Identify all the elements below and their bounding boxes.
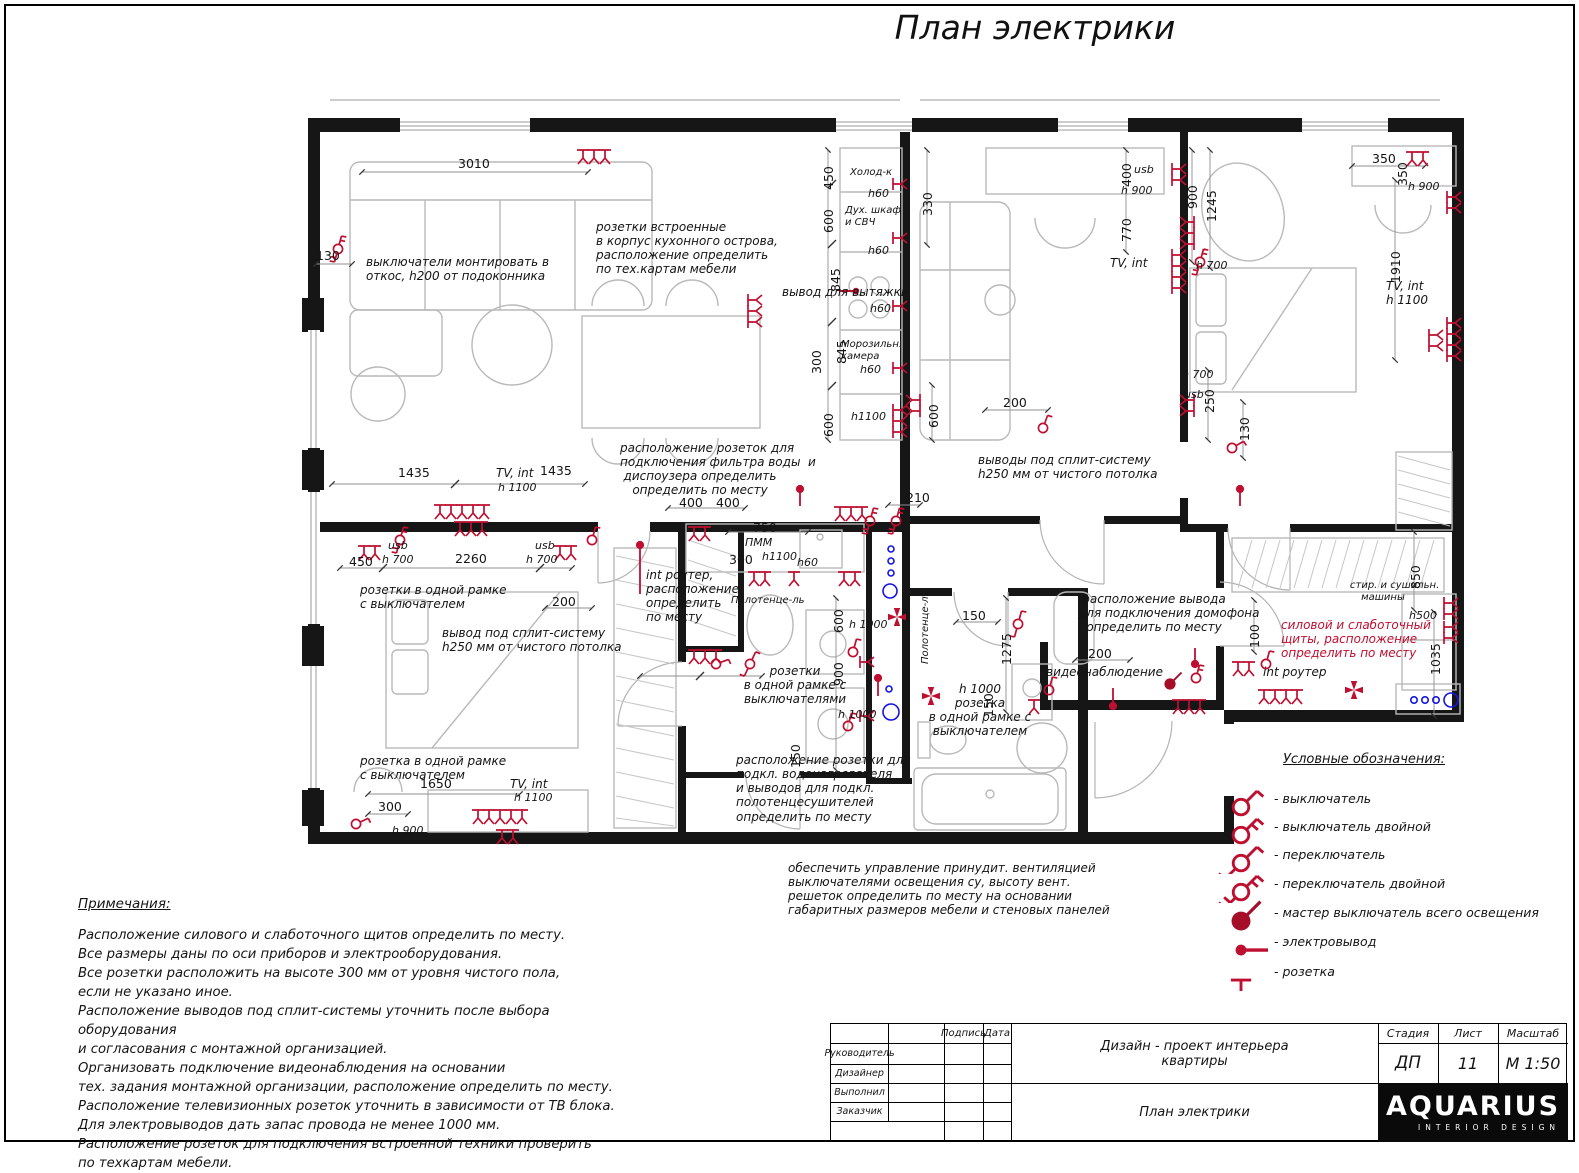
plan-label: 3010 <box>458 157 490 172</box>
switch-icon <box>1035 414 1057 434</box>
plan-label: 600 <box>822 413 837 437</box>
plan-label: 200 <box>552 595 576 610</box>
windows <box>308 100 1440 788</box>
plan-label: 300 <box>378 800 402 815</box>
note-line: Расположение телевизионных розеток уточн… <box>78 1097 638 1116</box>
note-line: если не указано иное. <box>78 983 638 1002</box>
plan-label: TV, int <box>510 777 547 791</box>
plan-label: TV, int <box>496 466 533 480</box>
switch-icon <box>710 653 732 673</box>
logo-text: AQUARIUS <box>1386 1093 1560 1120</box>
plan-label: Холод-к <box>850 167 892 179</box>
note-line: Организовать подключение видеонаблюдения… <box>78 1059 638 1078</box>
notes-title: Примечания: <box>78 896 638 912</box>
switch-double-icon <box>1187 663 1209 684</box>
note-line: и согласования с монтажной организацией. <box>78 1040 638 1059</box>
plan-label: 1035 <box>1429 643 1444 675</box>
plan-label: розетки встроенные в корпус кухонного ос… <box>596 220 778 277</box>
logo-subtext: INTERIOR DESIGN <box>1418 1123 1560 1132</box>
tb-list-label: Лист <box>1438 1024 1498 1043</box>
plan-label: TV, int h 1100 <box>1386 279 1428 307</box>
plan-label: обеспечить управление принудит. вентиляц… <box>788 861 1110 918</box>
plan-label: 450 <box>822 166 837 190</box>
plan-label: int роутер <box>1263 665 1327 679</box>
socket-group-icon <box>434 505 490 519</box>
plan-label: вывод под сплит-систему h250 мм от чисто… <box>442 626 621 654</box>
plan-label: h 900 <box>1408 181 1439 194</box>
plan-label: 600 <box>832 609 847 633</box>
plan-label: h60 <box>870 303 891 316</box>
tb-project: Дизайн - проект интерьера квартиры <box>1011 1024 1378 1083</box>
legend-title: Условные обозначения: <box>1283 752 1445 767</box>
plan-label: ПММ <box>745 537 772 550</box>
tb-date-label: Дата <box>983 1024 1011 1043</box>
plan-label: 210 <box>906 491 930 506</box>
plan-label: 770 <box>1120 218 1135 242</box>
plan-label: 1245 <box>1205 190 1220 222</box>
plan-label: h60 <box>868 245 889 258</box>
legend-label: - выключатель двойной <box>1274 819 1431 834</box>
fan-icon <box>1345 681 1363 699</box>
plan-label: usb <box>535 540 555 553</box>
plan-label: h 900 <box>392 825 423 838</box>
legend-label: - мастер выключатель всего освещения <box>1274 905 1539 920</box>
legend-label: - электровывод <box>1274 934 1376 949</box>
plan-label: 400 <box>679 496 703 511</box>
socket-group-icon <box>472 810 528 824</box>
notes-block: Примечания: Расположение силового и слаб… <box>78 896 638 1173</box>
plan-label: Морозильн. камера <box>841 339 902 363</box>
plan-label: h 1100 <box>498 482 536 495</box>
legend-label: - переключатель <box>1274 847 1385 862</box>
plan-label: 300 <box>729 553 753 568</box>
plan-label: расположение вывода для подключения домо… <box>1078 592 1230 634</box>
plan-label: видеонаблюдение <box>1046 665 1163 679</box>
plan-label: 750 <box>753 521 777 536</box>
plan-label: 330 <box>921 192 936 216</box>
plan-label: h 900 <box>1121 185 1152 198</box>
plan-label: силовой и слаботочный щиты, расположение… <box>1281 618 1431 660</box>
legend-label: - переключатель двойной <box>1274 876 1445 891</box>
note-line: Для электровыводов дать запас провода не… <box>78 1116 638 1135</box>
plan-label: 600 <box>822 209 837 233</box>
plan-label: h 700 <box>1196 260 1227 273</box>
plan-label: int роутер, расположение определить по м… <box>646 568 739 625</box>
socket-group-icon <box>1429 329 1443 352</box>
plan-label: h60 <box>860 364 881 377</box>
master-switch-icon <box>1164 673 1181 690</box>
plan-label: h1100 <box>762 551 797 564</box>
note-line: Расположение силового и слаботочного щит… <box>78 926 638 945</box>
plan-label: h 1000 <box>838 709 876 722</box>
plan-label: h500 <box>1409 610 1437 623</box>
plan-label: выключатели монтировать в откос, h200 от… <box>366 255 549 283</box>
tb-stage-label: Стадия <box>1378 1024 1438 1043</box>
socket-group-icon <box>834 507 868 521</box>
note-line: тех. задания монтажной организации, расп… <box>78 1078 638 1097</box>
plan-label: расположение розетки для подкл. водонагр… <box>736 753 911 824</box>
plan-label: h 1000 <box>849 619 887 632</box>
plan-label: 850 <box>1409 565 1424 589</box>
tb-list-value: 11 <box>1438 1043 1498 1083</box>
plan-label: 845 <box>829 268 844 292</box>
title-block: Подпись Дата РуководительДизайнерВыполни… <box>830 1023 1567 1141</box>
tb-row-label: Выполнил <box>831 1083 888 1102</box>
note-line: Все розетки расположить на высоте 300 мм… <box>78 964 638 983</box>
socket-group-icon <box>688 650 722 664</box>
socket-group-icon <box>838 572 861 586</box>
tb-stage-value: ДП <box>1378 1043 1438 1083</box>
plan-label: выводы под сплит-систему h250 мм от чист… <box>978 453 1157 481</box>
plan-label: h 700 <box>1182 369 1213 382</box>
tb-signature-label: Подпись <box>944 1024 983 1043</box>
legend-label: - розетка <box>1274 964 1335 979</box>
tb-row-label: Руководитель <box>831 1043 888 1064</box>
plan-label: 200 <box>1088 647 1112 662</box>
plan-label: стир. и сушильн. машины <box>1350 580 1416 604</box>
note-line: по техкартам мебели. <box>78 1154 638 1173</box>
plan-label: Полотенце-ль <box>731 595 805 607</box>
plan-label: h1100 <box>851 411 886 424</box>
plan-label: 1650 <box>420 777 452 792</box>
plan-label: 130 <box>316 249 340 264</box>
plan-label: Полотенце-ль <box>920 590 932 664</box>
plan-label: h 700 <box>526 554 557 567</box>
note-line: Все размеры даны по оси приборов и элект… <box>78 945 638 964</box>
plan-label: 250 <box>1203 389 1218 413</box>
socket-icon <box>788 572 800 586</box>
note-line: Расположение выводов под сплит-системы у… <box>78 1002 638 1040</box>
plan-label: 600 <box>927 404 942 428</box>
plan-label: TV, int <box>1110 256 1147 270</box>
socket-group-icon <box>1232 662 1255 676</box>
socket-group-icon <box>1258 690 1303 704</box>
plan-label: 1435 <box>398 466 430 481</box>
tb-row-label: Дизайнер <box>831 1064 888 1083</box>
plan-label: h 700 <box>382 554 413 567</box>
plan-label: 845 <box>835 340 850 364</box>
plan-label: h 1100 <box>514 792 552 805</box>
switch-icon <box>350 813 372 832</box>
plan-label: вывод для вытяжки <box>782 285 909 299</box>
legend-label: - выключатель <box>1274 791 1371 806</box>
plan-label: 400 <box>716 496 740 511</box>
plan-label: usb <box>388 540 408 553</box>
plan-label: usb <box>1134 164 1154 177</box>
socket-group-icon <box>748 572 771 586</box>
tb-scale-value: М 1:50 <box>1498 1043 1568 1083</box>
plan-label: 1435 <box>540 464 572 479</box>
company-logo: AQUARIUS INTERIOR DESIGN <box>1378 1083 1568 1142</box>
plan-label: Дух. шкаф и СВЧ <box>845 205 901 229</box>
tb-sheet-name: План электрики <box>1011 1083 1378 1142</box>
plan-label: 300 <box>810 350 825 374</box>
plan-label: 450 <box>349 555 373 570</box>
plan-label: 200 <box>1003 396 1027 411</box>
plan-label: 1275 <box>1000 633 1015 665</box>
drawing-sheet: { "sheet": { "title": "План электрики" }… <box>0 0 1579 1146</box>
plan-label: 900 <box>1186 185 1201 209</box>
plan-label: h60 <box>797 557 818 570</box>
plan-label: 2260 <box>455 552 487 567</box>
socket-icon <box>1214 957 1268 991</box>
plan-label: usb <box>1184 389 1204 402</box>
tb-row-label: Заказчик <box>831 1102 888 1121</box>
plan-label: h 1000 розетка в одной рамке с выключате… <box>918 682 1042 739</box>
plan-label: 350 <box>1372 152 1396 167</box>
plan-label: 150 <box>962 609 986 624</box>
note-line: Расположение розеток для подключения вст… <box>78 1135 638 1154</box>
plan-label: h60 <box>868 188 889 201</box>
tb-scale-label: Масштаб <box>1498 1024 1568 1043</box>
plan-label: розетки в одной рамке с выключателем <box>360 583 507 611</box>
plan-label: розетки в одной рамке с выключателями <box>740 664 850 706</box>
plan-label: расположение розеток для подключения фил… <box>620 441 780 498</box>
plan-label: 100 <box>1248 624 1263 648</box>
plan-label: 130 <box>1238 417 1253 441</box>
output-icon <box>1214 927 1268 961</box>
